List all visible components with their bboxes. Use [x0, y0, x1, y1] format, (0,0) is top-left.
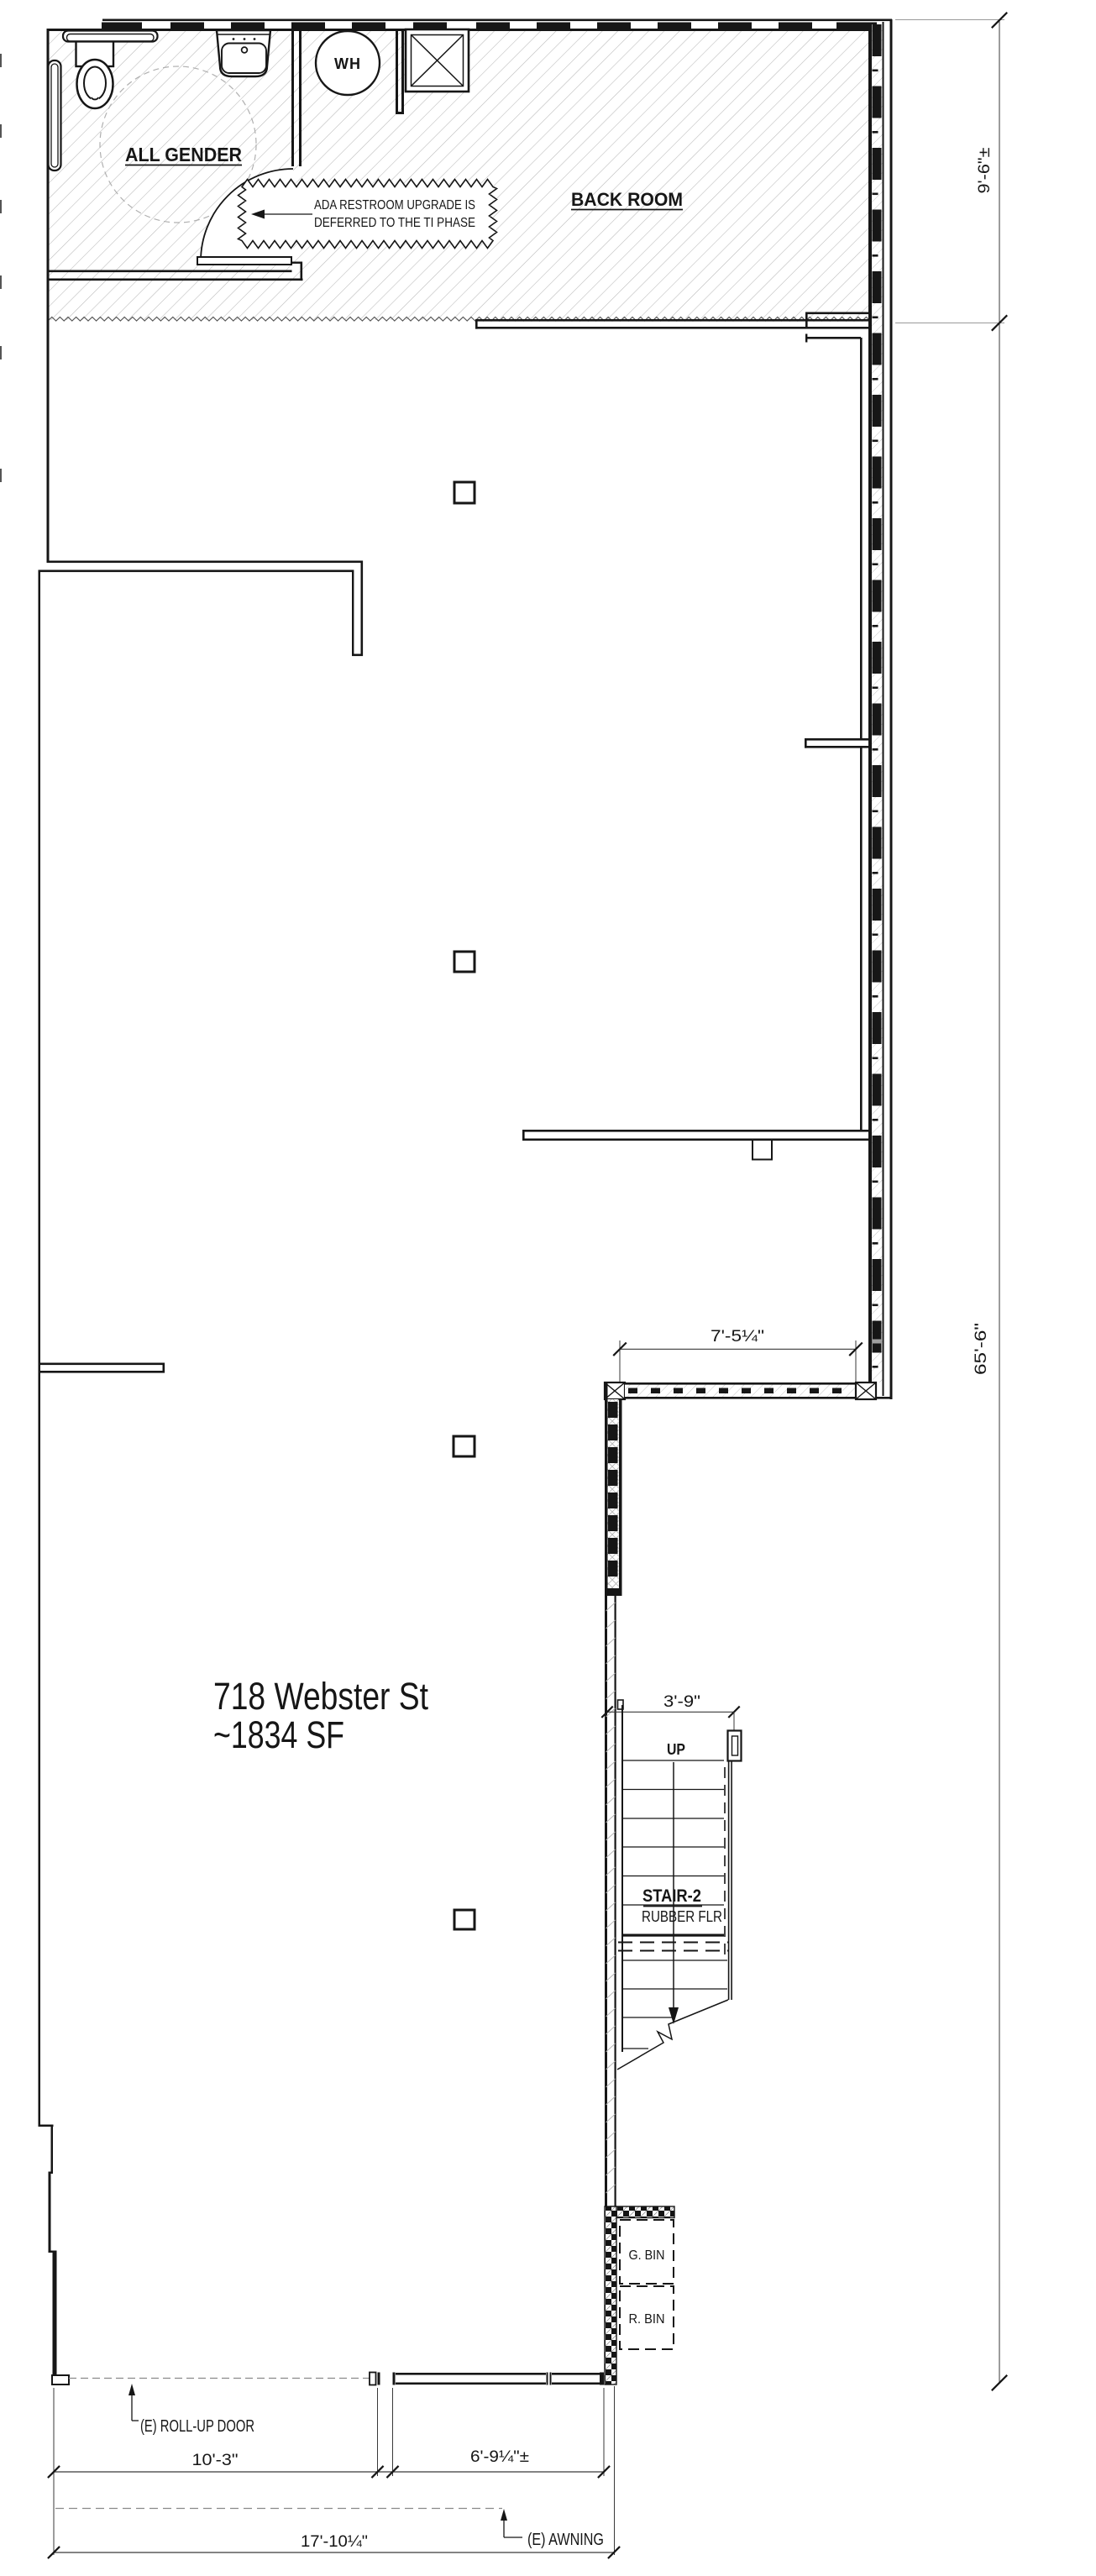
svg-text:BACK ROOM: BACK ROOM [571, 189, 683, 210]
svg-text:ADA RESTROOM UPGRADE IS: ADA RESTROOM UPGRADE IS [314, 198, 475, 212]
svg-text:3'-9": 3'-9" [663, 1692, 700, 1711]
svg-text:ALL GENDER: ALL GENDER [125, 144, 242, 165]
svg-text:UP: UP [667, 1741, 685, 1758]
svg-text:G. BIN: G. BIN [629, 2248, 665, 2263]
svg-text:~1834 SF: ~1834 SF [213, 1713, 344, 1756]
svg-text:(E) AWNING: (E) AWNING [527, 2531, 604, 2549]
svg-text:17'-10¼": 17'-10¼" [301, 2532, 368, 2551]
svg-text:6'-9¼"±: 6'-9¼"± [470, 2447, 529, 2466]
svg-text:WH: WH [334, 55, 361, 72]
svg-text:10'-3": 10'-3" [192, 2451, 239, 2469]
svg-text:STAIR-2: STAIR-2 [642, 1886, 701, 1906]
svg-text:(E) ROLL-UP DOOR: (E) ROLL-UP DOOR [140, 2417, 254, 2436]
svg-text:R. BIN: R. BIN [629, 2312, 665, 2327]
svg-text:RUBBER FLR: RUBBER FLR [642, 1908, 722, 1925]
svg-text:9'-6"±: 9'-6"± [975, 147, 994, 193]
svg-text:718 Webster St: 718 Webster St [213, 1675, 428, 1718]
svg-text:7'-5¼": 7'-5¼" [711, 1327, 764, 1346]
svg-text:65'-6": 65'-6" [972, 1323, 990, 1375]
svg-text:DEFERRED TO THE TI PHASE: DEFERRED TO THE TI PHASE [314, 216, 475, 230]
